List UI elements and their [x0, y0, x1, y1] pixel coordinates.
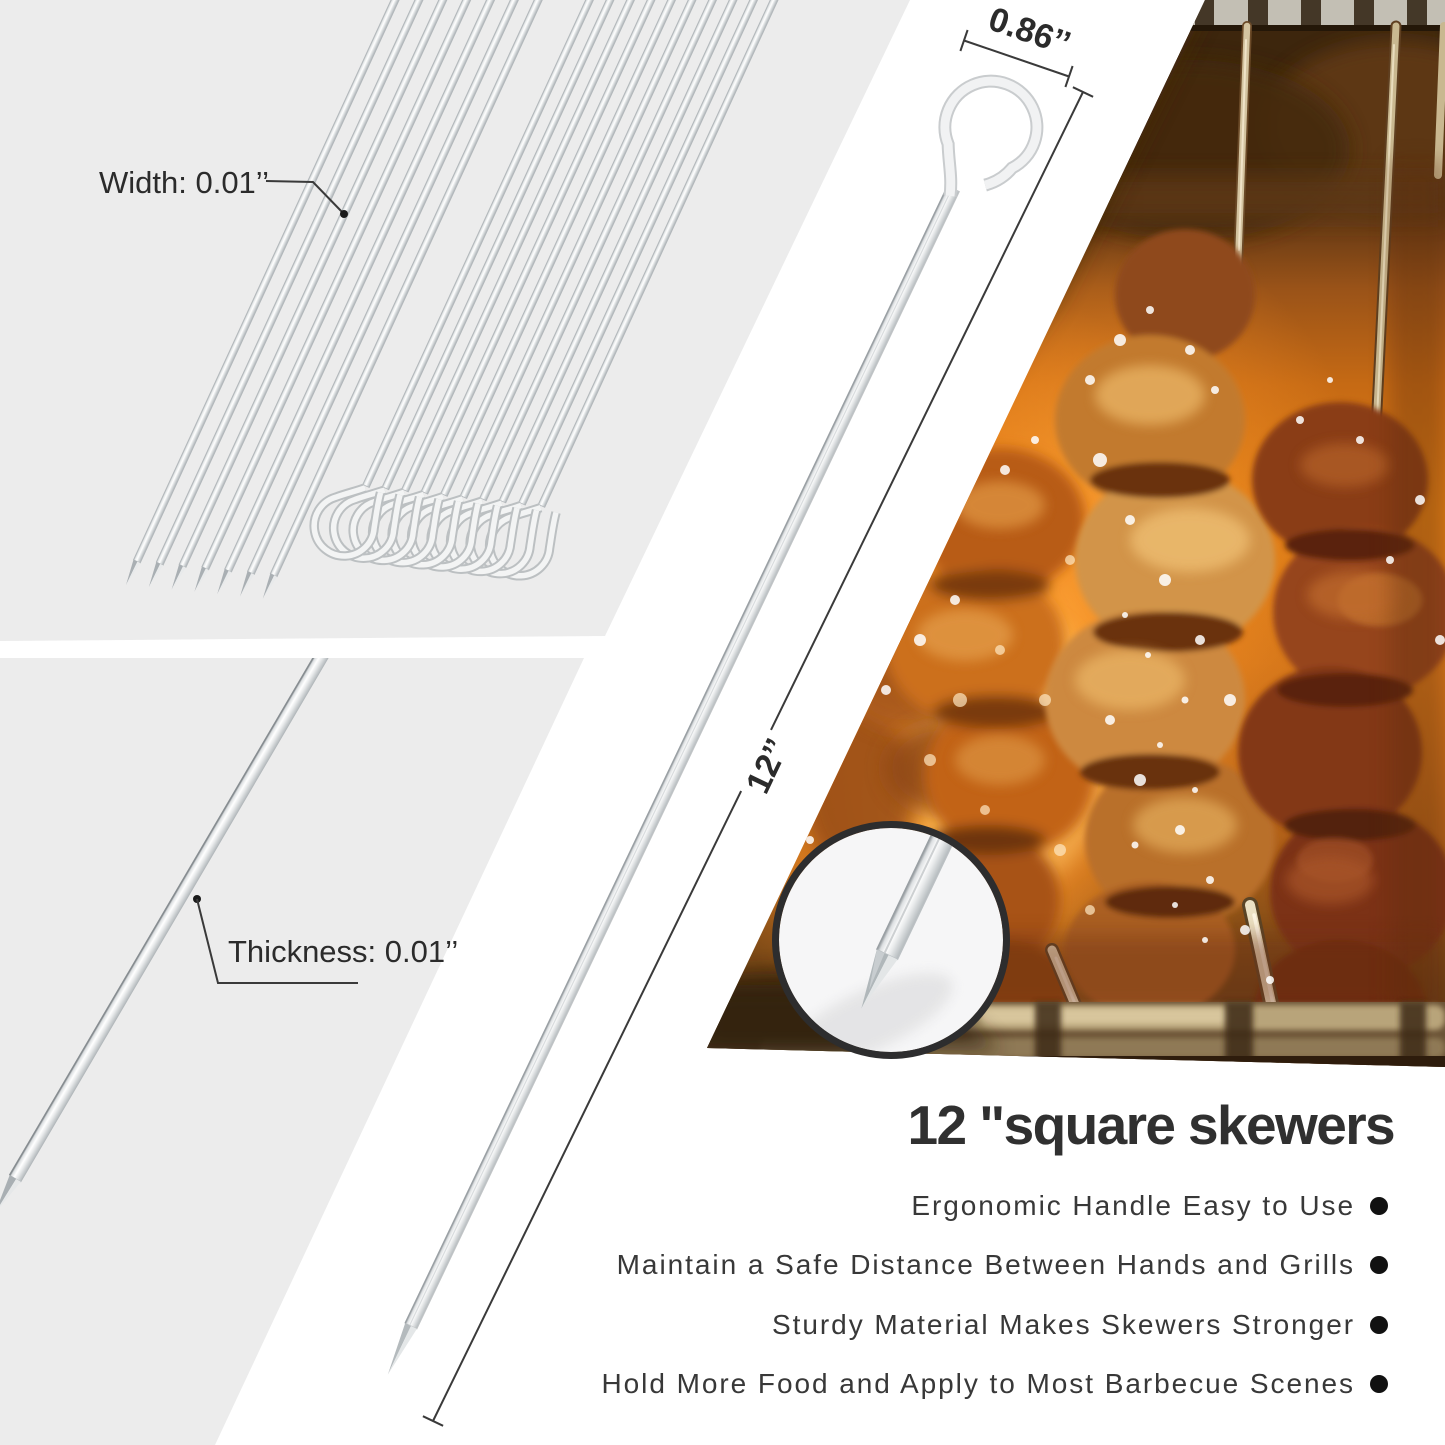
svg-text:0.86’’: 0.86’’ [984, 0, 1076, 63]
svg-text:Ergonomic Handle Easy to Use: Ergonomic Handle Easy to Use [911, 1190, 1355, 1221]
svg-text:12 "square skewers: 12 "square skewers [907, 1094, 1394, 1156]
svg-text:Thickness: 0.01’’: Thickness: 0.01’’ [228, 934, 458, 969]
svg-text:Maintain a Safe Distance Betwe: Maintain a Safe Distance Between Hands a… [617, 1249, 1355, 1280]
svg-text:Hold More Food and Apply to Mo: Hold More Food and Apply to Most Barbecu… [601, 1368, 1355, 1399]
svg-text:Width: 0.01’’: Width: 0.01’’ [99, 165, 269, 200]
svg-text:Sturdy Material Makes Skewers: Sturdy Material Makes Skewers Stronger [772, 1309, 1355, 1340]
